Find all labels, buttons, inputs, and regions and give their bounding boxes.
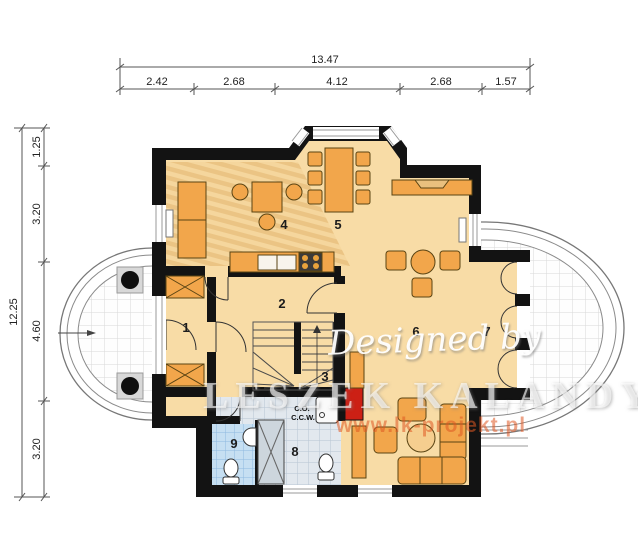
dining-chair [308, 152, 322, 166]
dim-total-height: 12.25 [8, 298, 20, 326]
sofa-bottom [398, 457, 466, 484]
dim-seg: 4.60 [31, 320, 43, 341]
chair [412, 278, 432, 297]
dim-seg: 3.20 [31, 438, 43, 459]
floor-plan-drawing: 1 2 3 4 5 6 7 8 9 C.O. C.C.W. 13.47 2.42… [0, 0, 638, 556]
room-label-3: 3 [321, 369, 328, 384]
kitchen-stool [232, 184, 248, 200]
dim-seg: 2.68 [223, 76, 244, 88]
armchair [374, 427, 397, 453]
dimension-top-labels: 13.47 2.42 2.68 4.12 2.68 1.57 [146, 54, 516, 88]
chimney [345, 388, 363, 420]
dimension-left-labels: 12.25 1.25 3.20 4.60 3.20 [8, 136, 43, 459]
window-south-living [358, 485, 392, 497]
dining-chair [308, 171, 322, 185]
dining-chair [356, 190, 370, 204]
bay-window-top [313, 127, 379, 139]
round-table [411, 250, 435, 274]
stove [299, 253, 322, 271]
cabinet [352, 426, 366, 478]
dim-seg: 2.42 [146, 76, 167, 88]
terrace-steps [481, 430, 528, 446]
dim-seg: 3.20 [31, 203, 43, 224]
dim-seg: 1.57 [495, 76, 516, 88]
coffee-table [407, 424, 435, 452]
room-label-2: 2 [278, 296, 285, 311]
sink [243, 428, 256, 446]
kitchen-table [252, 182, 282, 212]
chair [386, 251, 406, 270]
radiator [459, 218, 466, 242]
armchair [398, 398, 426, 421]
toilet [319, 454, 333, 472]
room-label-4: 4 [280, 217, 288, 232]
sideboard-detail [415, 180, 449, 188]
window-south-bath [283, 485, 317, 497]
toilet [224, 459, 238, 477]
boiler-label-ccw: C.C.W. [291, 413, 315, 422]
room-label-7: 7 [483, 324, 490, 339]
dining-chair [308, 190, 322, 204]
dining-table [325, 148, 353, 212]
window-west-kitchen [152, 205, 166, 242]
dim-seg: 4.12 [326, 76, 347, 88]
sofa-side [440, 404, 466, 460]
dim-seg: 1.25 [31, 136, 43, 157]
boiler [316, 397, 338, 423]
room-label-9: 9 [230, 436, 237, 451]
floor-plan-page: 1 2 3 4 5 6 7 8 9 C.O. C.C.W. 13.47 2.42… [0, 0, 638, 556]
room-label-1: 1 [182, 320, 189, 335]
tv-cabinet [350, 352, 364, 388]
room-label-8: 8 [291, 444, 298, 459]
room-label-6: 6 [412, 324, 419, 339]
dining-chair [356, 171, 370, 185]
dining-chair [356, 152, 370, 166]
dim-seg: 2.68 [430, 76, 451, 88]
porch-column [121, 271, 139, 289]
kitchen-stool [259, 214, 275, 230]
porch-left [58, 248, 152, 420]
room-label-5: 5 [334, 217, 341, 232]
chair [440, 251, 460, 270]
porch-column [121, 377, 139, 395]
kitchen-stool [286, 184, 302, 200]
radiator [166, 210, 173, 237]
entrance-glazing [152, 296, 166, 374]
window-east [469, 214, 481, 246]
boiler-label-co: C.O. [294, 404, 309, 413]
dim-total-width: 13.47 [311, 54, 339, 66]
